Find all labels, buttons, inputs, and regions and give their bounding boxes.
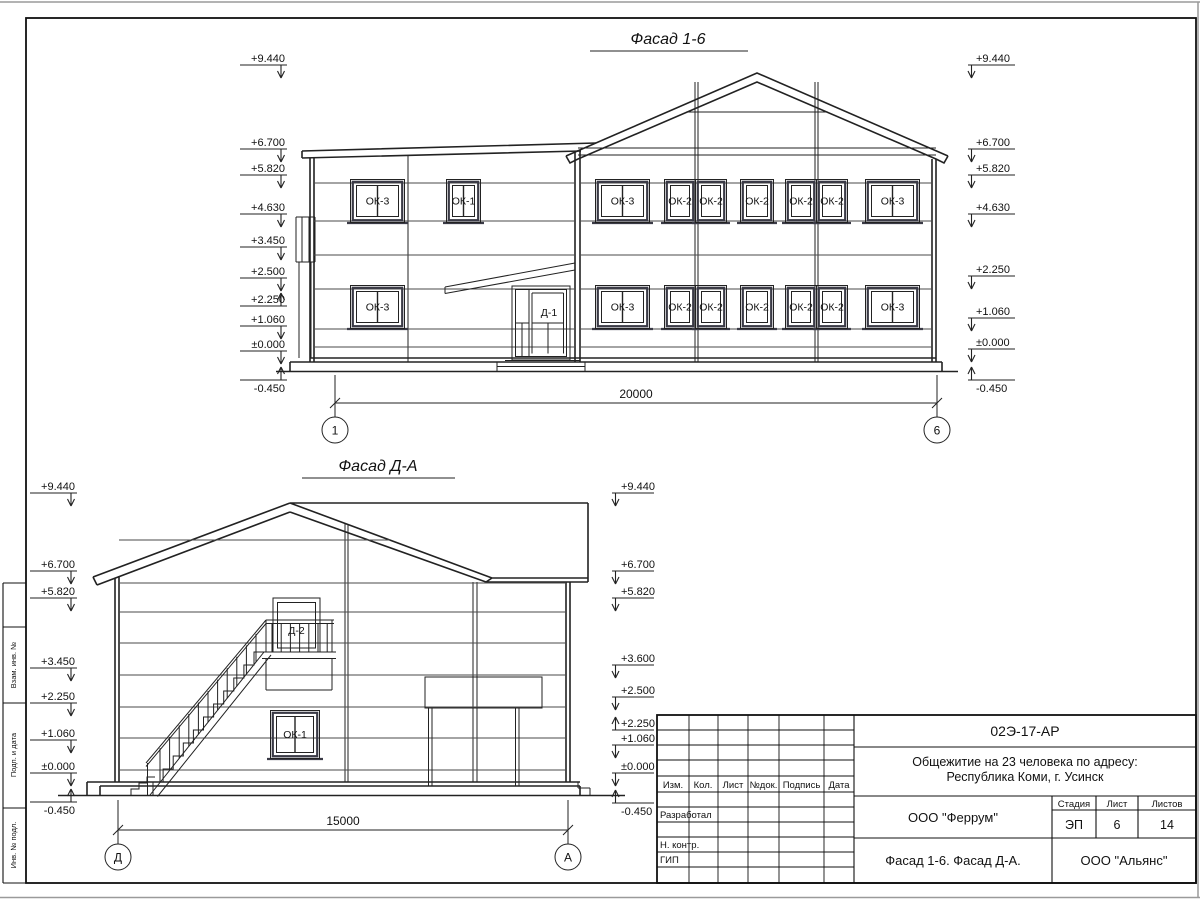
col-izm: Изм. <box>663 780 683 791</box>
elevation-value: +3.450 <box>41 656 75 668</box>
elevation-value: +9.440 <box>251 53 285 65</box>
window: ОК-3 <box>347 180 408 224</box>
row-gip: ГИП <box>660 855 679 866</box>
elevation-value: +6.700 <box>976 137 1010 149</box>
window: ОК-3 <box>592 180 653 224</box>
elevation-value: +9.440 <box>976 53 1010 65</box>
elevation-value: ±0.000 <box>976 337 1010 349</box>
col-ndok: №док. <box>750 780 778 791</box>
drawing-sheet: Взам. инв. № Подп. и дата Инв. № подл. Ф… <box>0 0 1200 900</box>
window-label: ОК-2 <box>745 196 769 208</box>
elevation-value: -0.450 <box>254 383 285 395</box>
col-data: Дата <box>828 780 850 791</box>
elevation-value: +2.250 <box>41 691 75 703</box>
drawing-canvas: Взам. инв. № Подп. и дата Инв. № подл. Ф… <box>0 0 1200 900</box>
stage-label: Стадия <box>1058 799 1090 810</box>
drawing-title: Фасад 1-6. Фасад Д-А. <box>885 853 1021 868</box>
window-label: ОК-2 <box>699 302 723 314</box>
elevation-value: +2.500 <box>251 266 285 278</box>
side-label-1: Взам. инв. № <box>9 642 18 688</box>
window-label: ОК-2 <box>820 302 844 314</box>
elevation-value: +6.700 <box>41 559 75 571</box>
window-label: ОК-3 <box>881 196 905 208</box>
elevation-value: +2.500 <box>621 685 655 697</box>
elevation-value: +2.250 <box>621 718 655 730</box>
row-developed: Разработал <box>660 810 712 821</box>
elevation-value: +4.630 <box>976 202 1010 214</box>
elevation-value: ±0.000 <box>621 761 655 773</box>
window: ОК-3 <box>862 180 923 224</box>
elevation-value: +5.820 <box>41 586 75 598</box>
elevation-value: -0.450 <box>976 383 1007 395</box>
stage-value: ЭП <box>1065 818 1083 832</box>
elevation-value: +2.250 <box>976 264 1010 276</box>
project-title-line2: Республика Коми, г. Усинск <box>947 770 1104 784</box>
dimension-value: 15000 <box>326 814 360 828</box>
window-label: ОК-2 <box>745 302 769 314</box>
elevation-value: ±0.000 <box>41 761 75 773</box>
elevation-value: -0.450 <box>621 806 652 818</box>
window-label: ОК-3 <box>366 196 390 208</box>
door-label: Д-1 <box>541 307 558 319</box>
window-label: ОК-1 <box>452 196 476 208</box>
axis-label-1: 1 <box>332 424 339 438</box>
col-kol: Кол. <box>694 780 713 791</box>
general-org: ООО "Альянс" <box>1081 853 1168 868</box>
project-title-line1: Общежитие на 23 человека по адресу: <box>912 755 1137 769</box>
window-label: ОК-2 <box>668 302 692 314</box>
facade-1-6-title: Фасад 1-6 <box>631 31 706 48</box>
side-label-2: Подп. и дата <box>9 732 18 777</box>
window: ОК-3 <box>347 286 408 330</box>
window-label: ОК-2 <box>699 196 723 208</box>
col-podpis: Подпись <box>783 780 821 791</box>
window-label: ОК-2 <box>789 196 813 208</box>
window: ОК-3 <box>862 286 923 330</box>
sheets-label: Листов <box>1152 799 1183 810</box>
elevation-value: +1.060 <box>621 733 655 745</box>
elevation-value: +1.060 <box>976 306 1010 318</box>
developer-org: ООО "Феррум" <box>908 810 998 825</box>
window-label: ОК-3 <box>881 302 905 314</box>
elevation-value: +9.440 <box>621 481 655 493</box>
side-label-3: Инв. № подл. <box>9 822 18 869</box>
elevation-value: +5.820 <box>251 163 285 175</box>
window-label: ОК-3 <box>366 302 390 314</box>
dimension-value: 20000 <box>619 387 653 401</box>
doc-number: 02Э-17-АР <box>990 723 1059 739</box>
sheets-value: 14 <box>1160 818 1174 832</box>
window-label: ОК-3 <box>611 196 635 208</box>
elevation-value: +1.060 <box>251 314 285 326</box>
window-label: ОК-3 <box>611 302 635 314</box>
elevation-value: ±0.000 <box>251 339 285 351</box>
elevation-value: +6.700 <box>621 559 655 571</box>
window-label: ОК-1 <box>283 729 307 741</box>
row-ncontrol: Н. контр. <box>660 840 699 851</box>
elevation-value: +9.440 <box>41 481 75 493</box>
axis-label-d: Д <box>114 851 122 865</box>
elevation-value: +5.820 <box>976 163 1010 175</box>
elevation-value: +6.700 <box>251 137 285 149</box>
window-label: ОК-2 <box>820 196 844 208</box>
axis-label-6: 6 <box>934 424 941 438</box>
elevation-value: +5.820 <box>621 586 655 598</box>
elevation-value: +4.630 <box>251 202 285 214</box>
window-label: ОК-2 <box>789 302 813 314</box>
window-label: ОК-2 <box>668 196 692 208</box>
window: ОК-1 <box>443 180 484 224</box>
axis-label-a: А <box>564 851 572 865</box>
elevation-value: +3.600 <box>621 653 655 665</box>
elevation-value: -0.450 <box>44 805 75 817</box>
elevation-value: +2.250 <box>251 294 285 306</box>
window: ОК-3 <box>592 286 653 330</box>
sheet-label: Лист <box>1107 799 1128 810</box>
elevation-value: +3.450 <box>251 235 285 247</box>
facade-d-a-title: Фасад Д-А <box>338 458 417 475</box>
col-list: Лист <box>723 780 744 791</box>
elevation-value: +1.060 <box>41 728 75 740</box>
sheet-value: 6 <box>1114 818 1121 832</box>
